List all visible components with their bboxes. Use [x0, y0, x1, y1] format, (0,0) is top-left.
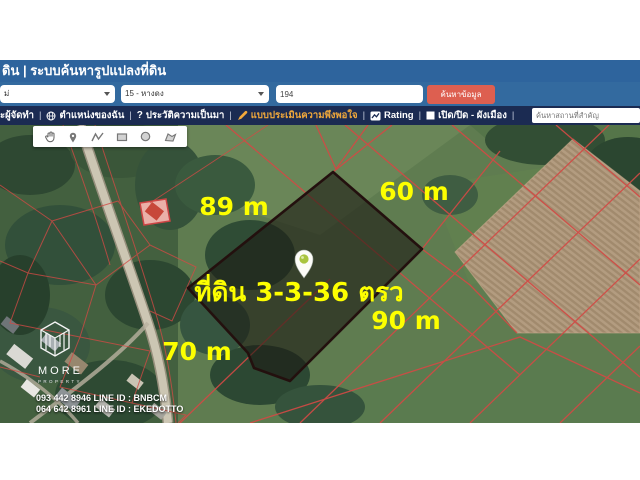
polygon-icon[interactable]: [164, 131, 177, 143]
hand-icon[interactable]: [43, 130, 56, 143]
search-data-button[interactable]: ค้นหาข้อมูล: [427, 85, 495, 104]
app-window: ดิน | ระบบค้นหารูปแปลงที่ดิน ม่ 15 - หาง…: [0, 0, 640, 480]
dimension-label-bottom-right: 90 m: [371, 306, 441, 335]
menu-separator: |: [512, 110, 514, 121]
highlighted-building: [140, 199, 170, 225]
menu-item-rating[interactable]: Rating: [370, 110, 414, 121]
circle-icon[interactable]: [139, 130, 152, 143]
menu-item-history[interactable]: ? ประวัติความเป็นมา: [137, 108, 225, 123]
pencil-icon: [237, 110, 248, 121]
menu-separator: |: [419, 110, 421, 121]
district-select-value: 15 - หางดง: [125, 89, 164, 98]
chart-icon: [370, 111, 381, 121]
parcel-number-input[interactable]: [276, 85, 423, 103]
draw-toolbar: [33, 126, 187, 147]
parcel-area-label: ที่ดิน 3-3-36 ตรว: [194, 273, 403, 308]
menu-item-creators[interactable]: ะผู้จัดทำ: [0, 108, 34, 123]
brand-subtitle: PROPERTY: [36, 379, 306, 384]
more-logo-icon: [36, 321, 306, 362]
menu-item-city-plan[interactable]: เปิด/ปิด - ผังเมือง: [426, 108, 507, 123]
area-select-value: ม่: [4, 89, 9, 98]
globe-icon: [46, 111, 56, 121]
place-search-input[interactable]: [532, 108, 640, 123]
menu-separator: |: [129, 110, 131, 121]
chevron-down-icon: [258, 92, 264, 96]
district-select[interactable]: 15 - หางดง: [121, 85, 269, 103]
brand-name: MORE: [36, 365, 306, 377]
contact-line-1: 093 442 8946 LINE ID : BNBCM: [36, 393, 306, 404]
page-title: ดิน | ระบบค้นหารูปแปลงที่ดิน: [0, 60, 640, 82]
contact-line-2: 064 642 8961 LINE ID : EKEDOTTO: [36, 404, 306, 415]
area-select[interactable]: ม่: [0, 85, 115, 103]
dimension-label-top-left: 89 m: [199, 192, 269, 221]
marker-icon[interactable]: [67, 131, 79, 143]
menu-item-survey[interactable]: แบบประเมินความพึงพอใจ: [237, 108, 358, 123]
chevron-down-icon: [104, 92, 110, 96]
brand-block: MORE PROPERTY 093 442 8946 LINE ID : BNB…: [36, 321, 306, 416]
dimension-label-top-right: 60 m: [379, 177, 449, 206]
menu-separator: |: [229, 110, 231, 121]
menu-item-my-location[interactable]: ตำแหน่งของฉัน: [46, 108, 124, 123]
menu-separator: |: [39, 110, 41, 121]
square-icon: [426, 111, 435, 120]
search-controls-bar: ม่ 15 - หางดง ค้นหาข้อมูล: [0, 82, 640, 106]
question-icon: ?: [137, 110, 143, 121]
menu-separator: |: [363, 110, 365, 121]
menu-bar: ะผู้จัดทำ | ตำแหน่งของฉัน | ? ประวัติควา…: [0, 106, 640, 125]
polyline-icon[interactable]: [91, 131, 104, 143]
rectangle-icon[interactable]: [116, 131, 128, 143]
